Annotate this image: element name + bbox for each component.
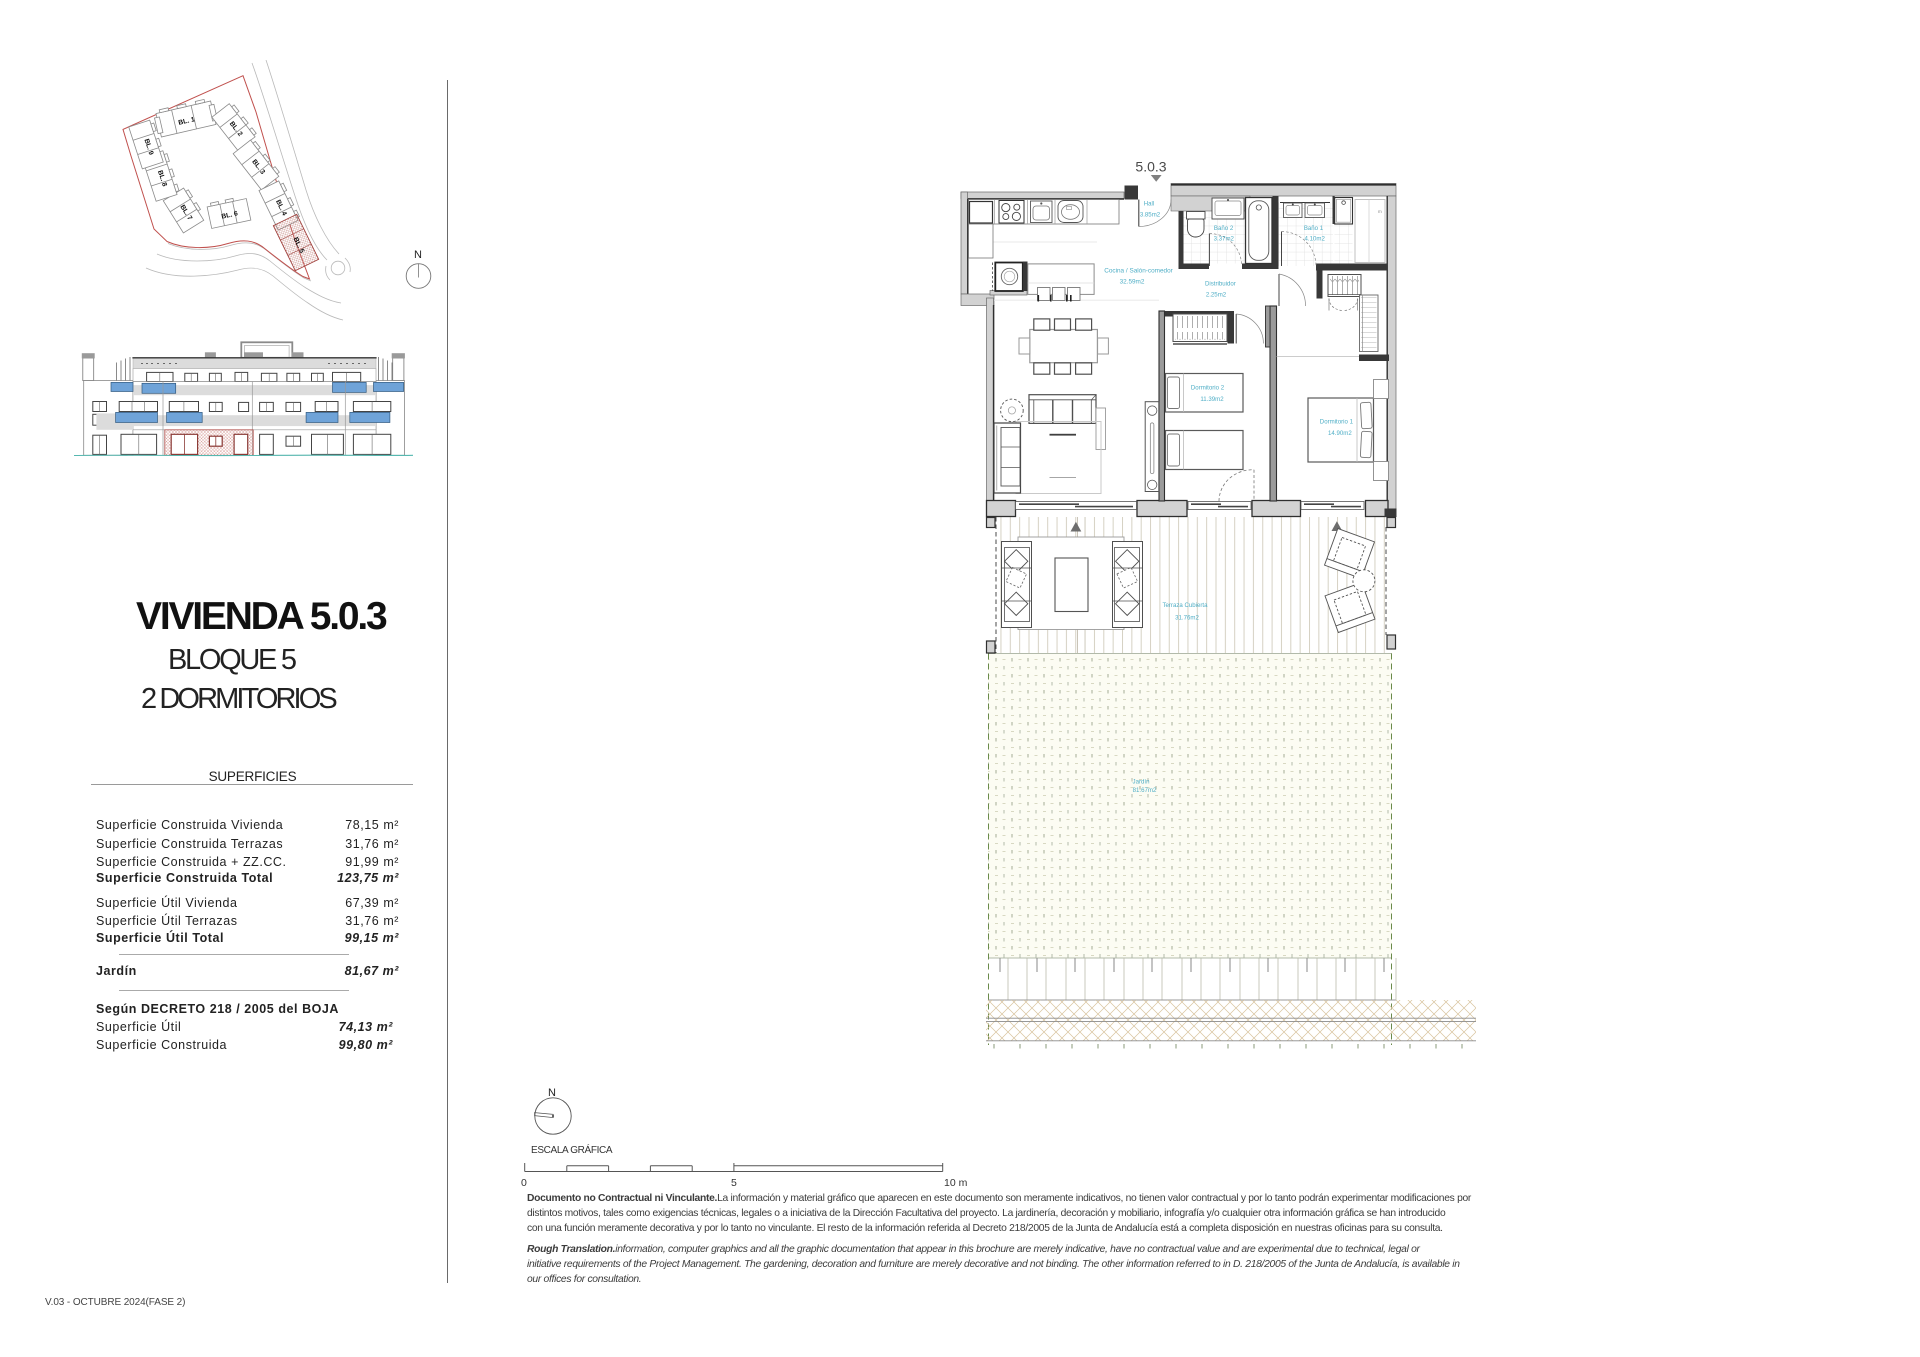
svg-text:14.90m2: 14.90m2 (1328, 430, 1352, 437)
svg-text:2.25m2: 2.25m2 (1206, 292, 1227, 299)
svg-text:4.10m2: 4.10m2 (1305, 236, 1326, 243)
svg-text:Jardín: Jardín (1133, 779, 1150, 786)
svg-text:Cocina / Salón-comedor: Cocina / Salón-comedor (1104, 268, 1173, 275)
svg-text:m: m (1378, 209, 1382, 214)
svg-text:Hall: Hall (1144, 201, 1155, 208)
svg-text:Distribuidor: Distribuidor (1205, 281, 1236, 288)
svg-text:N: N (414, 249, 422, 261)
svg-text:Baño 1: Baño 1 (1304, 225, 1324, 232)
svg-text:11.39m2: 11.39m2 (1200, 396, 1224, 403)
svg-text:Terraza Cubierta: Terraza Cubierta (1162, 602, 1208, 609)
svg-text:Baño 2: Baño 2 (1214, 225, 1234, 232)
svg-text:Dormitorio 2: Dormitorio 2 (1191, 385, 1225, 392)
svg-text:Dormitorio 1: Dormitorio 1 (1320, 419, 1354, 426)
svg-text:3.85m2: 3.85m2 (1140, 212, 1161, 219)
svg-text:5.0.3: 5.0.3 (1135, 159, 1166, 175)
svg-text:31.76m2: 31.76m2 (1175, 615, 1199, 622)
svg-text:32.59m2: 32.59m2 (1120, 279, 1145, 286)
svg-text:N: N (548, 1087, 556, 1099)
svg-text:81.67m2: 81.67m2 (1133, 787, 1157, 794)
svg-text:10 m: 10 m (944, 1177, 968, 1189)
svg-text:3.37m2: 3.37m2 (1214, 236, 1235, 243)
svg-text:0: 0 (521, 1177, 527, 1189)
svg-text:5: 5 (731, 1177, 737, 1189)
